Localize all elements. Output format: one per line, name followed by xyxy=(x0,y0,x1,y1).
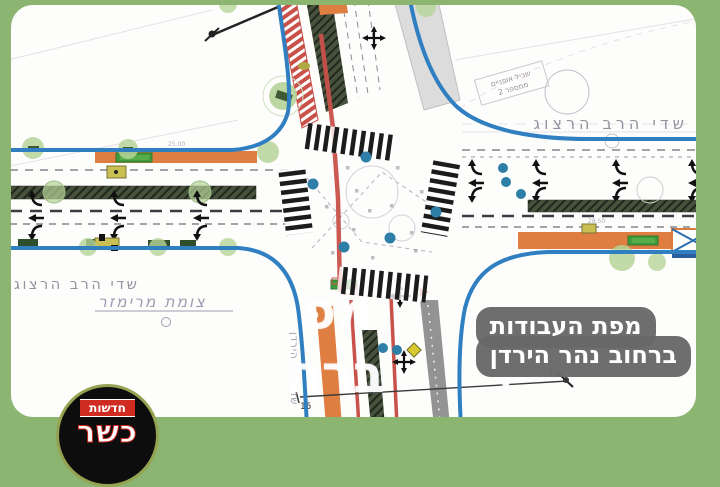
logo-brand: כשר xyxy=(77,418,138,448)
watermark-fragment: ברח xyxy=(286,349,385,401)
existing-road-gray xyxy=(420,300,450,417)
faint-circles xyxy=(333,166,415,241)
rail-red-line xyxy=(391,297,397,417)
street-label-left: שדי הרב הרצוג xyxy=(14,277,139,293)
median-tree-icon xyxy=(43,181,65,203)
lane-dash-north xyxy=(342,5,380,98)
tree-outline xyxy=(545,70,589,114)
junction-node-icon xyxy=(162,318,171,327)
tree-icon xyxy=(219,5,237,13)
crosswalk-east xyxy=(421,160,460,237)
watermark-fragment: מפ xyxy=(302,286,374,338)
crosswalk-west xyxy=(278,166,313,236)
crosswalk-north xyxy=(305,123,396,161)
junction-label: צומת מרימזר xyxy=(98,293,206,311)
utility-dot xyxy=(114,170,118,174)
guide-dashes xyxy=(302,172,444,252)
curb-southwest xyxy=(11,248,307,417)
tree-icon xyxy=(609,245,635,271)
tree-icon xyxy=(648,253,666,271)
warning-diamond-icon xyxy=(407,343,421,357)
caption-line-2: ברחוב נהר הירדן xyxy=(476,336,691,377)
curb-northwest xyxy=(11,5,289,150)
median-hatch xyxy=(528,200,696,212)
road-west-arm xyxy=(11,137,296,256)
road-east-arm xyxy=(462,70,696,271)
signal-dots-center xyxy=(308,152,442,253)
pole-mark xyxy=(99,234,105,241)
street-light-pole-icon xyxy=(205,7,278,41)
works-sign-inner xyxy=(632,238,655,243)
median-tree-icon xyxy=(189,181,211,203)
utility-ellipse xyxy=(298,62,310,70)
lane-arrow-cluster xyxy=(362,26,386,50)
utility-box-yellow xyxy=(582,224,596,233)
news-frame: { "frame": { "background_green": "#8cb57… xyxy=(0,0,720,426)
works-strip-orange xyxy=(318,5,348,15)
tree-outline xyxy=(637,177,663,203)
street-label-right: שדי הרב הרצוג xyxy=(534,114,688,133)
channel-logo: חדשות כשר xyxy=(56,384,159,487)
dim-small: 28.50 xyxy=(588,218,605,225)
caption-bubble: מפת העבודות ברחוב נהר הירדן xyxy=(476,307,691,377)
signal-dots-east xyxy=(498,163,526,199)
signal-dot-icon xyxy=(392,345,402,355)
dim-small: 25.00 xyxy=(168,141,185,148)
